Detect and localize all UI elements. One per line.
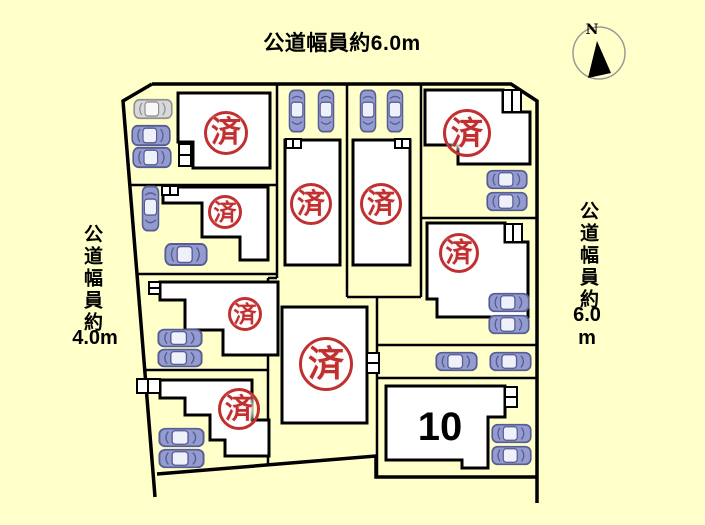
porch-icon [395, 139, 410, 148]
car-icon [159, 429, 203, 447]
road-label-left: 公道幅員約 [80, 224, 102, 334]
porch-icon [162, 186, 178, 195]
car-icon [143, 186, 159, 230]
compass-needle-icon [588, 41, 611, 78]
porch-icon [367, 353, 379, 373]
porch-icon [505, 387, 517, 407]
sold-stamp: 済 [218, 388, 260, 430]
car-icon [436, 353, 476, 371]
north-label: N [581, 22, 603, 38]
porch-icon [286, 139, 301, 148]
porch-icon [179, 144, 191, 166]
site-plan: 済済済済済済済済済 公道幅員約6.0m 公道幅員約 4.0m 公道幅員約 6.0… [0, 0, 705, 525]
sold-stamp: 済 [290, 183, 332, 225]
car-icon [132, 126, 170, 145]
sold-stamp: 済 [228, 297, 262, 331]
sold-stamp: 済 [360, 183, 402, 225]
road-width-right-value: 6.0 [563, 304, 611, 327]
lot-number: 10 [392, 405, 488, 449]
car-icon [165, 244, 206, 265]
sold-stamp: 済 [204, 111, 248, 155]
car-icon [159, 450, 203, 468]
car-icon [387, 90, 402, 131]
porch-icon [505, 224, 522, 242]
road-width-left: 4.0m [66, 327, 124, 350]
sold-stamp: 済 [443, 109, 491, 157]
car-icon [492, 425, 531, 443]
sold-stamp: 済 [299, 337, 353, 391]
car-icon [133, 148, 171, 167]
porch-icon [137, 379, 160, 393]
car-icon [490, 353, 530, 371]
porch-icon [503, 90, 521, 112]
car-icon [492, 447, 531, 465]
sold-stamp: 済 [439, 233, 479, 273]
road-label-top: 公道幅員約6.0m [242, 27, 442, 57]
plan-drawing [0, 0, 705, 525]
car-icon [318, 90, 333, 131]
car-icon [158, 330, 201, 347]
porch-icon [149, 282, 160, 294]
car-icon [487, 171, 526, 189]
car-icon [489, 294, 528, 312]
sold-stamp: 済 [208, 195, 242, 229]
car-icon [487, 193, 526, 211]
car-icon [158, 350, 201, 367]
car-icon [489, 316, 528, 334]
car-icon [289, 90, 304, 131]
road-width-right-unit: m [563, 327, 611, 350]
car-icon [134, 100, 172, 118]
car-icon [360, 90, 375, 131]
road-label-right: 公道幅員約 [576, 201, 598, 311]
